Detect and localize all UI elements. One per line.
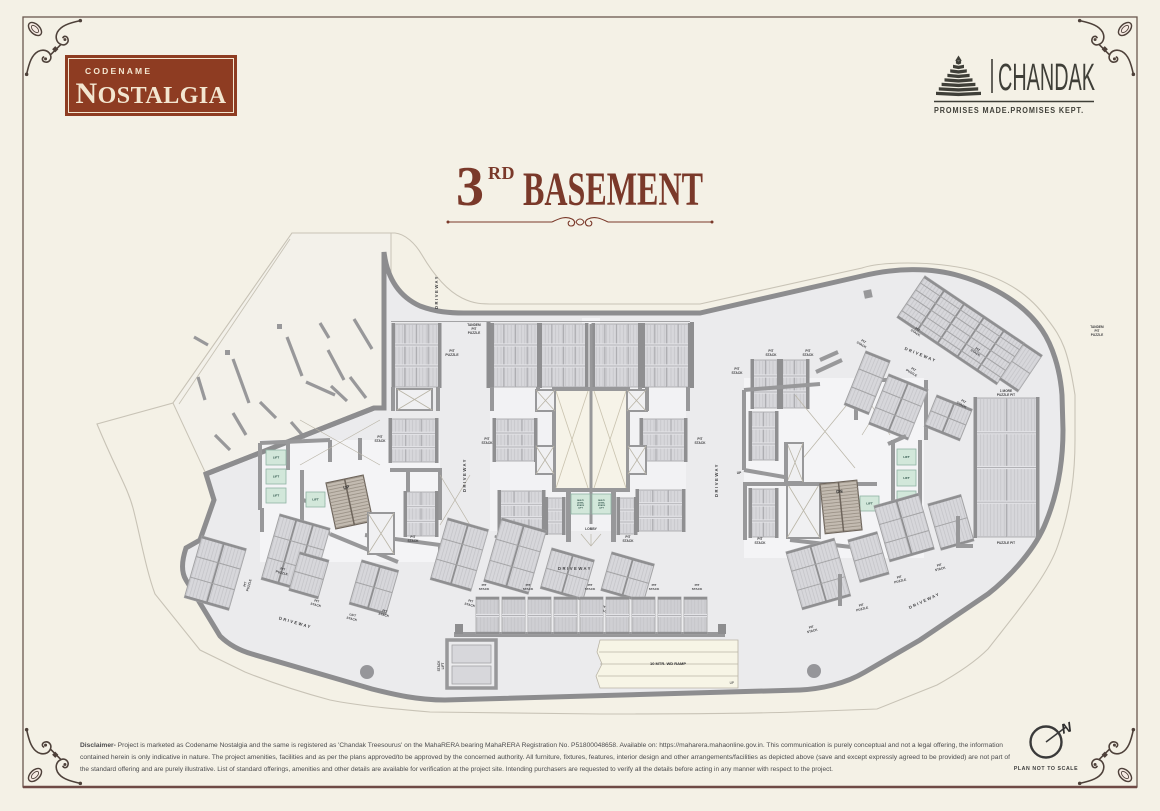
svg-text:PROMISES MADE.PROMISES KEPT.: PROMISES MADE.PROMISES KEPT. [934, 106, 1084, 115]
svg-text:STACK: STACK [577, 504, 585, 507]
svg-text:LIFT: LIFT [866, 502, 872, 506]
svg-text:PLAN NOT TO SCALE: PLAN NOT TO SCALE [1014, 766, 1078, 772]
svg-text:STACK: STACK [598, 504, 606, 507]
svg-text:LIFT: LIFT [312, 498, 318, 502]
svg-text:DN: DN [836, 489, 843, 495]
svg-text:LIFT: LIFT [273, 494, 279, 498]
svg-text:LIFT: LIFT [273, 456, 279, 460]
svg-text:LIFT: LIFT [599, 508, 604, 510]
svg-text:UP: UP [730, 681, 734, 685]
svg-text:DRIVEWAY: DRIVEWAY [434, 275, 439, 309]
svg-text:contained herein is only indic: contained herein is only indicative in n… [80, 754, 1010, 761]
svg-text:LIFT: LIFT [273, 475, 279, 479]
svg-text:DRIVEWAY: DRIVEWAY [714, 463, 719, 497]
svg-text:10 MTR. WD RAMP: 10 MTR. WD RAMP [650, 661, 686, 666]
svg-text:LIFT: LIFT [903, 455, 909, 459]
svg-text:LIFT: LIFT [578, 508, 583, 510]
svg-text:BASEMENT: BASEMENT [523, 163, 703, 216]
svg-text:DRIVEWAY: DRIVEWAY [558, 566, 592, 571]
svg-text:CHANDAK: CHANDAK [998, 57, 1095, 99]
svg-text:RD: RD [488, 163, 515, 183]
svg-text:DRIVEWAY: DRIVEWAY [462, 458, 467, 492]
svg-text:the standard offering and are: the standard offering and are purely ill… [80, 766, 833, 773]
svg-text:CODENAME: CODENAME [85, 66, 152, 76]
svg-text:3: 3 [456, 156, 484, 218]
svg-text:LOBBY: LOBBY [585, 527, 598, 531]
svg-text:PUZZLE PIT: PUZZLE PIT [997, 541, 1015, 545]
svg-text:LIFT: LIFT [903, 476, 909, 480]
svg-text:Disclaimer- Project is markete: Disclaimer- Project is marketed as Coden… [80, 742, 1003, 749]
